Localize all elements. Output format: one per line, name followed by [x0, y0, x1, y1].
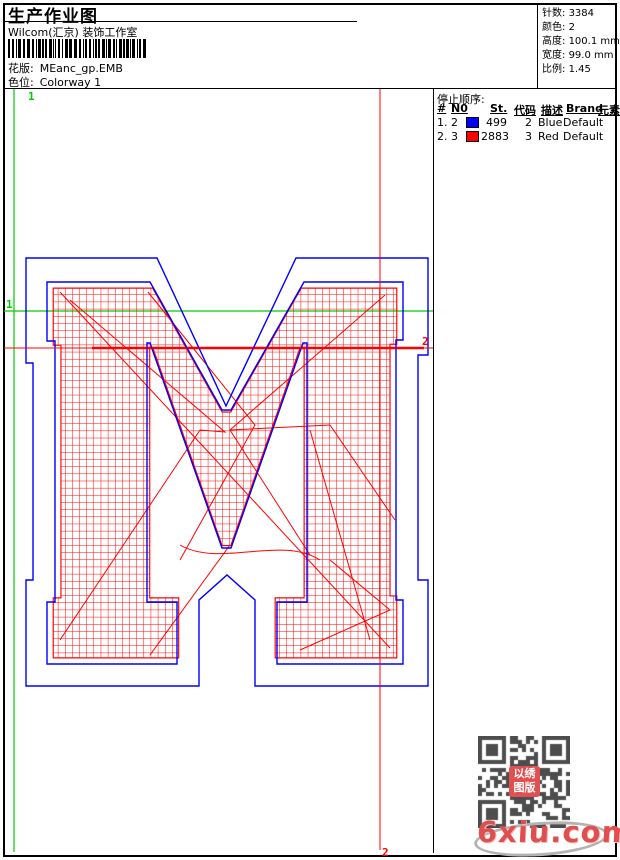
stitch-count-row: 针数: 3384: [542, 7, 617, 21]
table-cell: Default: [563, 116, 603, 129]
design-info-box: 针数: 3384 颜色: 2 高度: 100.1 mm 宽度: 99.0 mm …: [537, 3, 617, 89]
table-cell: 3: [451, 130, 458, 143]
table-cell: 2883: [481, 130, 507, 143]
watermark-site: 6xiu.com: [476, 815, 620, 849]
table-cell: 2: [451, 116, 458, 129]
table-cell: 499: [481, 116, 507, 129]
studio-name: Wilcom(汇京) 装饰工作室: [8, 24, 137, 40]
stitch-count: 3384: [569, 8, 594, 19]
color-count: 2: [569, 22, 575, 33]
table-row: 2.328833RedDefault: [433, 130, 617, 144]
table-cell: 2.: [437, 130, 448, 143]
design-scale: 1.45: [569, 64, 591, 75]
column-header-2: St.: [490, 102, 507, 115]
height-row: 高度: 100.1 mm: [542, 35, 617, 49]
design-width: 99.0 mm: [569, 50, 614, 61]
barcode: [8, 39, 148, 58]
table-cell: 2: [517, 116, 532, 129]
column-header-0: #: [437, 102, 446, 115]
qr-seal: 以绣 图版: [509, 766, 540, 797]
table-row: 1.24992BlueDefault: [433, 116, 617, 130]
table-cell: Default: [563, 130, 603, 143]
table-cell: 1.: [437, 116, 448, 129]
production-worksheet: 生产作业图 Wilcom(汇京) 装饰工作室 花版:MEanc_gp.EMB 色…: [0, 0, 620, 860]
width-row: 宽度: 99.0 mm: [542, 49, 617, 63]
title-divider: [5, 21, 357, 22]
scale-row: 比例: 1.45: [542, 63, 617, 77]
thread-color-swatch: [466, 117, 479, 128]
column-header-1: N0: [451, 102, 468, 115]
color-count-row: 颜色: 2: [542, 21, 617, 35]
table-cell: Red: [538, 130, 559, 143]
thread-color-swatch: [466, 131, 479, 142]
table-cell: Blue: [538, 116, 562, 129]
table-cell: 3: [517, 130, 532, 143]
design-height: 100.1 mm: [569, 36, 620, 47]
